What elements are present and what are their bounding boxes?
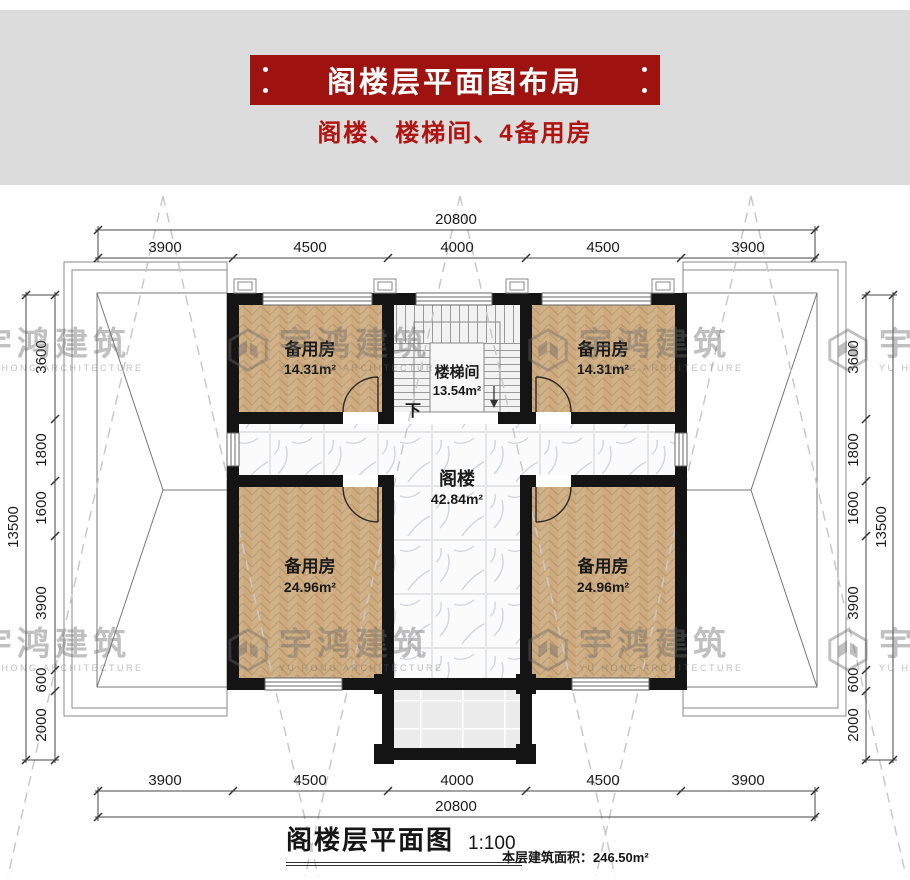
svg-text:3900: 3900 [845,586,862,619]
svg-text:1800: 1800 [33,433,50,466]
column [516,674,536,694]
svg-text:3900: 3900 [33,586,50,619]
floor-plan-drawing: 20800 3900 4500 4000 4500 3900 3900 4500… [0,0,910,880]
area-spare-bottom-right: 24.96m² [577,579,629,595]
svg-text:3900: 3900 [148,239,181,256]
label-spare-top-right: 备用房 [577,339,629,359]
svg-text:3900: 3900 [148,772,181,789]
svg-text:1600: 1600 [33,491,50,524]
stair-down-label: 下 [405,403,421,420]
area-stairwell: 13.54m² [433,383,482,398]
svg-text:1600: 1600 [845,491,862,524]
column [374,674,394,694]
right-roof [683,262,846,716]
svg-text:4500: 4500 [586,239,619,256]
label-stairwell: 楼梯间 [434,363,479,381]
svg-text:3900: 3900 [731,772,764,789]
window-bottom-left-room [265,678,342,690]
area-spare-bottom-left: 24.96m² [284,579,336,595]
left-roof [64,262,227,716]
svg-text:600: 600 [845,667,862,692]
window-stairwell [416,293,492,305]
floor-plan-page: 阁楼层平面图布局 阁楼、楼梯间、4备用房 [0,0,910,880]
area-spare-top-right: 14.31m² [577,361,629,377]
svg-text:2000: 2000 [33,708,50,741]
floor-area-note: 本层建筑面积：246.50m² [502,847,649,866]
svg-text:3900: 3900 [731,239,764,256]
drawing-title: 阁楼层平面图 [286,820,454,857]
label-attic: 阁楼 [439,468,475,489]
column [516,744,536,764]
window-corridor-left [227,433,239,466]
window-top-left-room [263,293,372,305]
dim-total-right: 13500 [873,506,890,548]
svg-text:3600: 3600 [845,340,862,373]
column [374,744,394,764]
pilaster-marks [234,279,674,293]
dim-total-bottom: 20800 [435,798,477,815]
drawing-title-block: 阁楼层平面图 1:100 [286,820,522,866]
svg-text:2000: 2000 [845,708,862,741]
svg-text:1800: 1800 [845,433,862,466]
window-corridor-right [675,433,687,466]
svg-text:4500: 4500 [293,239,326,256]
svg-text:600: 600 [33,667,50,692]
svg-text:3600: 3600 [33,340,50,373]
area-attic: 42.84m² [431,491,483,507]
svg-text:4500: 4500 [293,772,326,789]
window-bottom-right-room [572,678,649,690]
label-spare-bottom-left: 备用房 [284,556,336,576]
svg-text:4500: 4500 [586,772,619,789]
balcony-floor [394,690,520,748]
label-spare-bottom-right: 备用房 [577,556,629,576]
window-top-right-room [542,293,651,305]
dim-total-left: 13500 [5,506,22,548]
label-spare-top-left: 备用房 [284,339,336,359]
dim-total-top: 20800 [435,211,477,228]
svg-text:4000: 4000 [440,772,473,789]
area-spare-top-left: 14.31m² [284,361,336,377]
svg-text:4000: 4000 [440,239,473,256]
